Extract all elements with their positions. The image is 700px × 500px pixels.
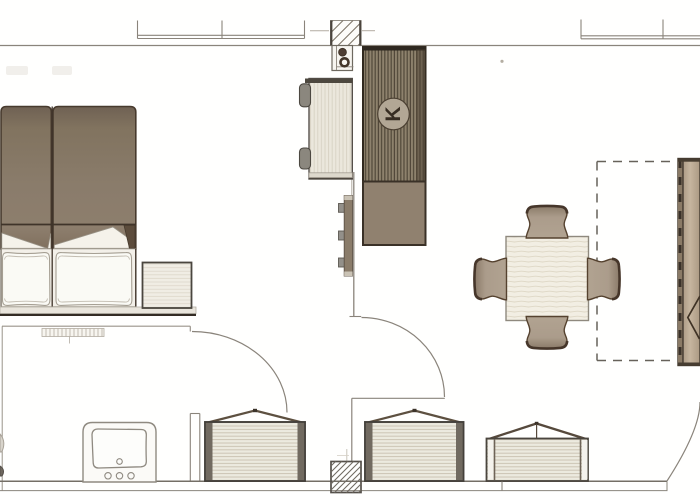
svg-text:K: K	[382, 106, 405, 121]
